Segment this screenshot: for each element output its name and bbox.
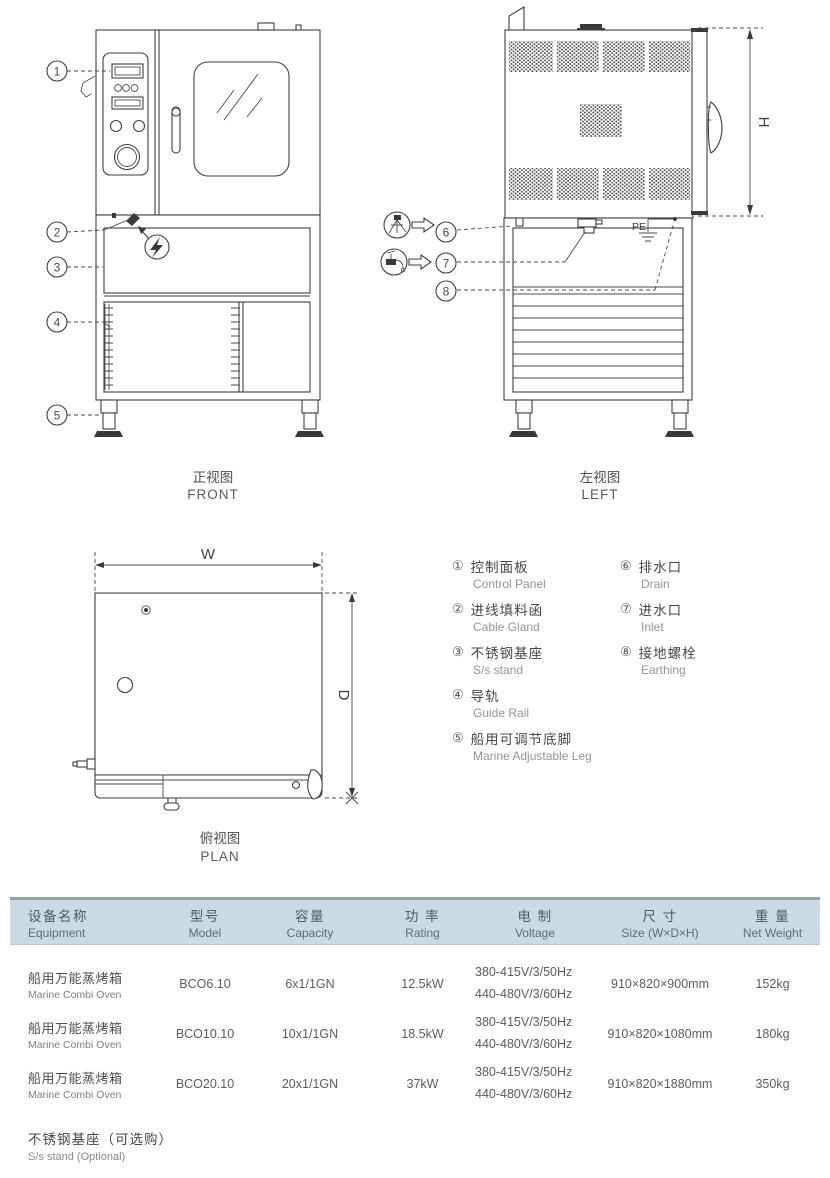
adjustable-legs bbox=[94, 400, 324, 437]
cell-equipment: 船用万能蒸烤箱 Marine Combi Oven bbox=[10, 968, 160, 1001]
callout-5: 5 bbox=[47, 405, 67, 425]
front-view-drawing: 1 2 3 4 5 正视图 FRONT bbox=[47, 23, 324, 502]
left-stand bbox=[504, 218, 694, 437]
legend-zh: 不锈钢基座 bbox=[471, 642, 544, 662]
cell-voltage: 380-415V/3/50Hz 440-480V/3/60Hz bbox=[475, 962, 595, 1006]
legend-item-4: ④导轨 Guide Rail bbox=[452, 685, 592, 720]
svg-text:4: 4 bbox=[54, 316, 61, 330]
drain-icon bbox=[384, 212, 410, 238]
legend-num: ② bbox=[452, 601, 464, 617]
oven-door-handle bbox=[172, 107, 180, 153]
cell-equipment: 船用万能蒸烤箱 Marine Combi Oven bbox=[10, 1018, 160, 1051]
plan-door bbox=[95, 775, 322, 798]
datasheet-page: 1 2 3 4 5 正视图 FRONT bbox=[0, 0, 830, 1178]
plan-label-en: PLAN bbox=[200, 849, 239, 864]
legend-num: ⑥ bbox=[620, 558, 632, 574]
cell-capacity: 20x1/1GN bbox=[250, 1077, 370, 1091]
cell-weight: 350kg bbox=[725, 1077, 820, 1091]
svg-text:3: 3 bbox=[54, 261, 61, 275]
legend-item-5: ⑤船用可调节底脚 Marine Adjustable Leg bbox=[452, 728, 592, 763]
left-label-zh: 左视图 bbox=[580, 470, 621, 485]
plan-label-zh: 俯视图 bbox=[200, 831, 241, 846]
table-row: 船用万能蒸烤箱 Marine Combi Oven BCO6.10 6x1/1G… bbox=[10, 959, 820, 1009]
left-legs bbox=[509, 400, 694, 437]
cell-weight: 180kg bbox=[725, 1027, 820, 1041]
flue-chimney bbox=[509, 7, 524, 30]
legend-en: Drain bbox=[620, 577, 697, 591]
footnote-en: S/s stand (Optional) bbox=[28, 1151, 173, 1163]
legend-zh: 导轨 bbox=[471, 685, 500, 705]
svg-text:5: 5 bbox=[54, 409, 61, 423]
cell-equipment: 船用万能蒸烤箱 Marine Combi Oven bbox=[10, 1068, 160, 1101]
legend-item-1: ①控制面板 Control Panel bbox=[452, 556, 592, 591]
dim-label-d: D bbox=[335, 690, 352, 701]
block-arrow-drain bbox=[412, 218, 434, 232]
legend-zh: 船用可调节底脚 bbox=[471, 728, 573, 748]
plan-door-knob bbox=[164, 798, 179, 810]
legend-column-left: ①控制面板 Control Panel ②进线填料函 Cable Gland ③… bbox=[452, 556, 592, 771]
cell-model: BCO6.10 bbox=[160, 977, 250, 991]
legend-num: ③ bbox=[452, 644, 464, 660]
callout-4: 4 bbox=[47, 312, 67, 332]
legend-zh: 接地螺栓 bbox=[639, 642, 697, 662]
cell-rating: 12.5kW bbox=[370, 977, 475, 991]
col-header-equipment: 设备名称Equipment bbox=[10, 905, 160, 940]
front-label-en: FRONT bbox=[187, 487, 239, 502]
footnote-zh: 不锈钢基座（可选购） bbox=[28, 1128, 173, 1148]
table-header: 设备名称Equipment 型号Model 容量Capacity 功 率Rati… bbox=[10, 897, 820, 945]
callout-7: 7 bbox=[436, 253, 456, 273]
faucet-icon bbox=[381, 249, 407, 275]
optional-stand-note: 不锈钢基座（可选购） S/s stand (Optional) bbox=[28, 1128, 173, 1163]
cell-weight: 152kg bbox=[725, 977, 820, 991]
legend-num: ① bbox=[452, 558, 464, 574]
plan-body bbox=[73, 593, 322, 810]
legend-item-7: ⑦进水口 Inlet bbox=[620, 599, 697, 634]
cell-model: BCO20.10 bbox=[160, 1077, 250, 1091]
dim-label-w: W bbox=[201, 546, 216, 563]
table-row: 船用万能蒸烤箱 Marine Combi Oven BCO10.10 10x1/… bbox=[10, 1009, 820, 1059]
legend-en: Guide Rail bbox=[452, 706, 592, 720]
col-header-size: 尺 寸Size (W×D×H) bbox=[595, 905, 725, 940]
callout-6: 6 bbox=[436, 222, 456, 242]
col-header-voltage: 电 制Voltage bbox=[475, 905, 595, 940]
wall-hook bbox=[81, 76, 95, 97]
legend-en: Control Panel bbox=[452, 577, 592, 591]
plan-view-drawing: W bbox=[0, 540, 450, 880]
callout-1: 1 bbox=[47, 61, 67, 81]
cell-capacity: 6x1/1GN bbox=[250, 977, 370, 991]
cell-capacity: 10x1/1GN bbox=[250, 1027, 370, 1041]
depth-dimension: D bbox=[325, 593, 360, 804]
col-header-rating: 功 率Rating bbox=[370, 905, 475, 940]
control-knob bbox=[115, 145, 140, 170]
legend-en: Marine Adjustable Leg bbox=[452, 749, 592, 763]
dim-label-h: H bbox=[755, 117, 772, 128]
plan-faucet-stub bbox=[73, 759, 95, 769]
legend-en: Cable Gland bbox=[452, 620, 592, 634]
col-header-weight: 重 量Net Weight bbox=[725, 905, 820, 940]
cell-size: 910×820×1080mm bbox=[595, 1027, 725, 1041]
legend-zh: 进线填料函 bbox=[471, 599, 544, 619]
cell-model: BCO10.10 bbox=[160, 1027, 250, 1041]
svg-text:8: 8 bbox=[443, 285, 450, 299]
front-stand bbox=[94, 215, 324, 437]
left-door-edge bbox=[691, 28, 722, 215]
legend-num: ⑤ bbox=[452, 730, 464, 746]
col-header-model: 型号Model bbox=[160, 905, 250, 940]
callout-8: 8 bbox=[436, 281, 456, 301]
legend-en: Earthing bbox=[620, 663, 697, 677]
cell-size: 910×820×1880mm bbox=[595, 1077, 725, 1091]
cell-size: 910×820×900mm bbox=[595, 977, 725, 991]
legend-num: ⑦ bbox=[620, 601, 632, 617]
legend-item-3: ③不锈钢基座 S/s stand bbox=[452, 642, 592, 677]
svg-text:6: 6 bbox=[443, 226, 450, 240]
left-label-en: LEFT bbox=[581, 487, 618, 502]
legend-item-6: ⑥排水口 Drain bbox=[620, 556, 697, 591]
cell-rating: 37kW bbox=[370, 1077, 475, 1091]
side-handle bbox=[708, 102, 722, 153]
table-body: 船用万能蒸烤箱 Marine Combi Oven BCO6.10 6x1/1G… bbox=[10, 959, 820, 1109]
callout-2: 2 bbox=[47, 222, 67, 242]
legend-en: Inlet bbox=[620, 620, 697, 634]
legend-en: S/s stand bbox=[452, 663, 592, 677]
svg-text:2: 2 bbox=[54, 226, 61, 240]
legend-zh: 进水口 bbox=[639, 599, 683, 619]
width-dimension: W bbox=[95, 546, 322, 593]
cell-voltage: 380-415V/3/50Hz 440-480V/3/60Hz bbox=[475, 1062, 595, 1106]
cell-voltage: 380-415V/3/50Hz 440-480V/3/60Hz bbox=[475, 1012, 595, 1056]
legend-item-2: ②进线填料函 Cable Gland bbox=[452, 599, 592, 634]
legend-zh: 排水口 bbox=[639, 556, 683, 576]
svg-text:7: 7 bbox=[443, 257, 450, 271]
door-glass-window bbox=[194, 62, 289, 176]
block-arrow-inlet bbox=[409, 255, 431, 269]
legend-num: ④ bbox=[452, 687, 464, 703]
table-row: 船用万能蒸烤箱 Marine Combi Oven BCO20.10 20x1/… bbox=[10, 1059, 820, 1109]
left-view-drawing: H bbox=[381, 7, 772, 502]
legend-column-right: ⑥排水口 Drain ⑦进水口 Inlet ⑧接地螺栓 Earthing bbox=[620, 556, 697, 685]
legend-item-8: ⑧接地螺栓 Earthing bbox=[620, 642, 697, 677]
elevation-drawings: 1 2 3 4 5 正视图 FRONT bbox=[0, 0, 830, 540]
cell-rating: 18.5kW bbox=[370, 1027, 475, 1041]
legend-num: ⑧ bbox=[620, 644, 632, 660]
callout-3: 3 bbox=[47, 257, 67, 277]
spec-table: 设备名称Equipment 型号Model 容量Capacity 功 率Rati… bbox=[10, 897, 820, 1109]
svg-text:1: 1 bbox=[54, 65, 61, 79]
legend-zh: 控制面板 bbox=[471, 556, 529, 576]
front-label-zh: 正视图 bbox=[193, 470, 234, 485]
col-header-capacity: 容量Capacity bbox=[250, 905, 370, 940]
pe-label: PE bbox=[632, 221, 646, 233]
